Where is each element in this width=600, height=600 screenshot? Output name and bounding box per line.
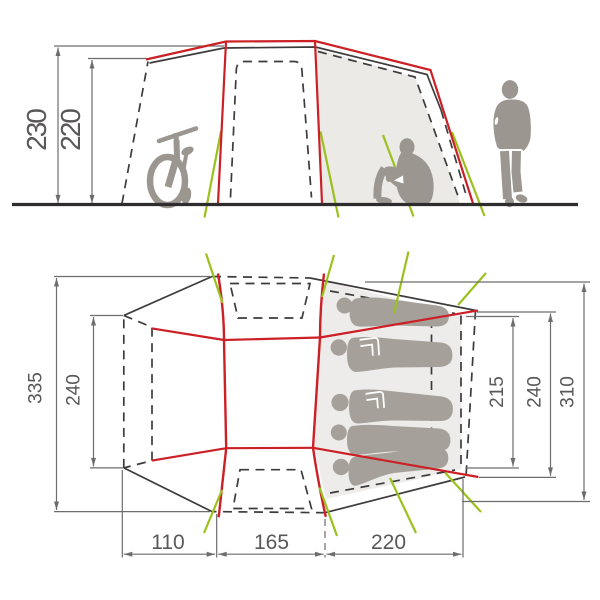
svg-text:230: 230: [21, 109, 52, 151]
svg-text:215: 215: [487, 376, 508, 408]
svg-text:310: 310: [558, 376, 579, 408]
svg-text:240: 240: [64, 374, 85, 406]
svg-text:240: 240: [525, 376, 546, 408]
svg-text:165: 165: [254, 531, 289, 554]
svg-text:220: 220: [55, 109, 86, 151]
svg-text:335: 335: [26, 372, 47, 404]
svg-text:110: 110: [151, 531, 184, 554]
svg-text:220: 220: [371, 531, 406, 554]
